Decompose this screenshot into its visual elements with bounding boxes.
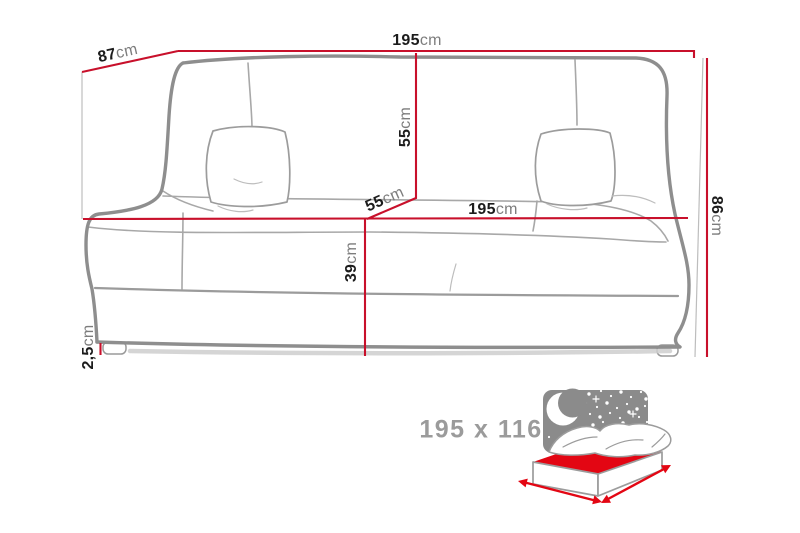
- seat-cushion-seam: [533, 201, 537, 231]
- dimension-label-overall-height: 86cm: [707, 196, 725, 236]
- dimension-unit: cm: [343, 242, 360, 264]
- sofa-bed-icon: [518, 389, 671, 505]
- throw-pillow-left: [206, 127, 289, 207]
- backrest-seam-left: [248, 63, 252, 128]
- extension-line-right: [695, 58, 703, 357]
- arm-inner-contour: [163, 191, 213, 211]
- dimension-value: 55: [397, 129, 414, 147]
- dimension-unit: cm: [496, 201, 518, 218]
- base-bottom-edge: [97, 342, 679, 347]
- dimension-value: 39: [343, 264, 360, 282]
- seat-front-edge: [88, 227, 666, 242]
- dimension-label-backrest-height: 55cm: [397, 107, 415, 147]
- base-shadow: [130, 351, 670, 353]
- dimension-value: 195: [468, 201, 496, 218]
- throw-pillow-right: [535, 129, 615, 206]
- dimension-value: 86: [708, 196, 725, 214]
- dimension-unit: cm: [114, 41, 139, 62]
- dimension-value: 2,5: [80, 346, 97, 369]
- pillow-right-crease: [612, 195, 655, 203]
- dimension-label-leg-height: 2,5cm: [80, 324, 98, 369]
- dimension-unit: cm: [420, 32, 442, 49]
- dimension-label-top-width: 195cm: [392, 32, 442, 50]
- dimension-unit: cm: [80, 324, 97, 346]
- backrest-seam-right: [575, 60, 577, 125]
- sofa-dimension-diagram: 195cm 87cm 55cm 55cm 195cm 86cm 39cm 2,5…: [0, 0, 800, 533]
- diagram-artwork: [0, 0, 800, 533]
- dimension-label-seat-height: 39cm: [343, 242, 361, 282]
- dimension-unit: cm: [397, 107, 414, 129]
- sofa-outline-left-arm: [86, 63, 183, 342]
- dimension-unit: cm: [708, 214, 725, 236]
- dimension-line-seat-width: [83, 218, 688, 219]
- seat-crease: [450, 264, 456, 291]
- sleeping-area-size-label: 195 x 116: [419, 416, 542, 445]
- base-seam-left: [182, 213, 183, 289]
- dimension-label-seat-width: 195cm: [468, 201, 518, 219]
- dimension-value: 195: [392, 32, 420, 49]
